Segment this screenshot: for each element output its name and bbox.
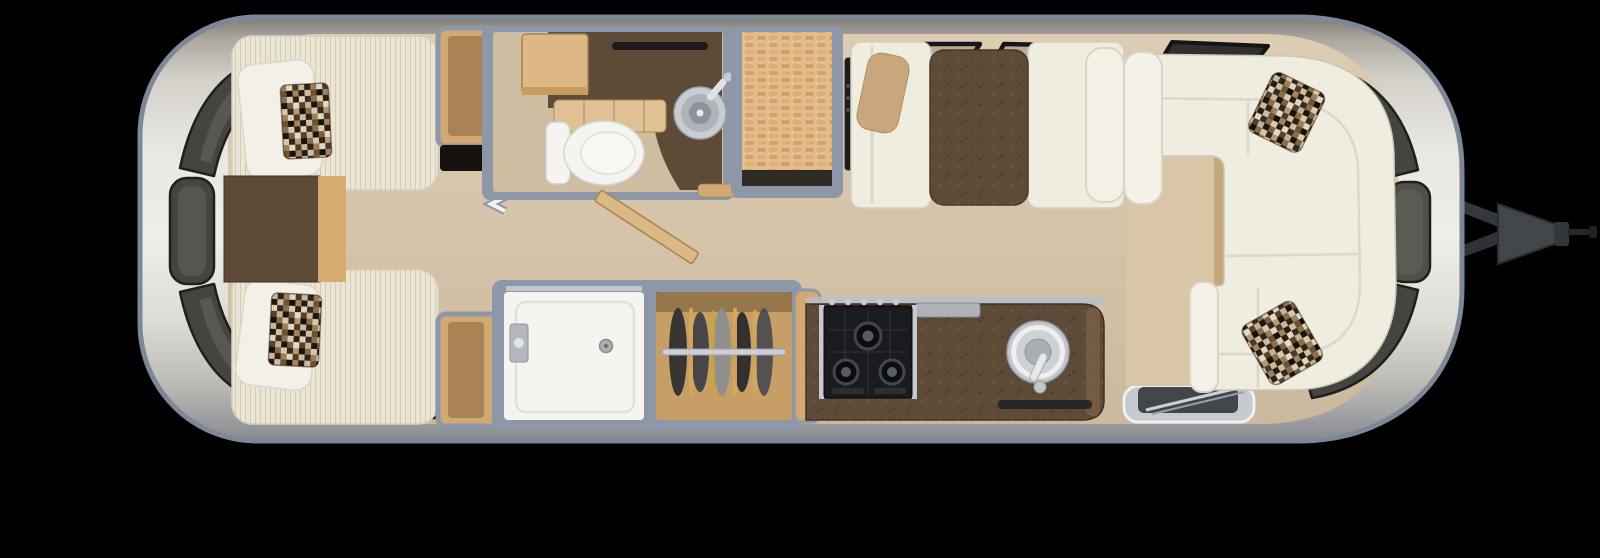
rear-mid-window-glass (178, 186, 206, 276)
pantry-wicker-texture (742, 32, 832, 172)
front-lounge (1124, 52, 1396, 392)
burner-left (834, 360, 858, 384)
dinette (845, 42, 1124, 208)
pantry (731, 26, 843, 198)
bench-right-backrest (1086, 48, 1124, 202)
cooktop-knob-2 (845, 299, 851, 305)
front-center-window-glass (1395, 189, 1423, 275)
hitch-coupler (1554, 222, 1569, 246)
cooktop-rail-left (819, 305, 824, 399)
bathroom-window (612, 42, 708, 50)
hitch-rod-tip (1589, 226, 1597, 238)
shower-valve-knob (514, 338, 524, 348)
mosaic-pillow-roadside (280, 83, 332, 159)
nightstand (224, 176, 320, 282)
cooktop-vent-right (874, 388, 906, 394)
cooktop-rail-right (912, 305, 917, 399)
tv-button-1 (846, 84, 850, 88)
sofa-armrest-left (1124, 52, 1162, 204)
closet-hanging-rod (662, 349, 786, 355)
mosaic-pillow-curbside (268, 293, 322, 368)
pantry-dark-sill (742, 170, 832, 186)
shower-drain-hole (604, 344, 608, 348)
cooktop-vent-left (832, 388, 864, 394)
cooktop-knob-3 (861, 299, 867, 305)
bath-sink-drain (697, 110, 704, 117)
kitchen-faucet-handle (1034, 381, 1046, 393)
cooktop-knob-1 (829, 299, 835, 305)
burner-right (880, 360, 904, 384)
counter-end-panel (1086, 308, 1100, 416)
shower-and-closet (492, 280, 802, 430)
tv-button-2 (846, 96, 850, 100)
overhead-cabinet-edge (522, 87, 588, 95)
nightstand-wood-front (318, 176, 346, 282)
overhead-cabinet (522, 34, 588, 94)
tv-button-3 (846, 108, 850, 112)
floor-plan-image (0, 0, 1600, 558)
kitchen-floor-mat (998, 400, 1092, 409)
shower-glass-edge (506, 286, 642, 291)
cooktop-knob-4 (877, 299, 883, 305)
toilet-seat (581, 132, 635, 174)
foot-cabinet-curbside-interior (448, 322, 484, 418)
counter-flip-cover (916, 303, 980, 317)
foot-cabinet-roadside-interior (448, 36, 484, 136)
sofa-armrest-bottom (1190, 282, 1218, 392)
floor-plan-canvas (0, 0, 1600, 558)
entry (1124, 386, 1254, 422)
dinette-table-texture (930, 50, 1028, 205)
cooktop-knob-5 (893, 299, 899, 305)
kitchen (794, 290, 1104, 422)
burner-front (855, 323, 881, 349)
hitch-jack-rod (1567, 229, 1592, 235)
